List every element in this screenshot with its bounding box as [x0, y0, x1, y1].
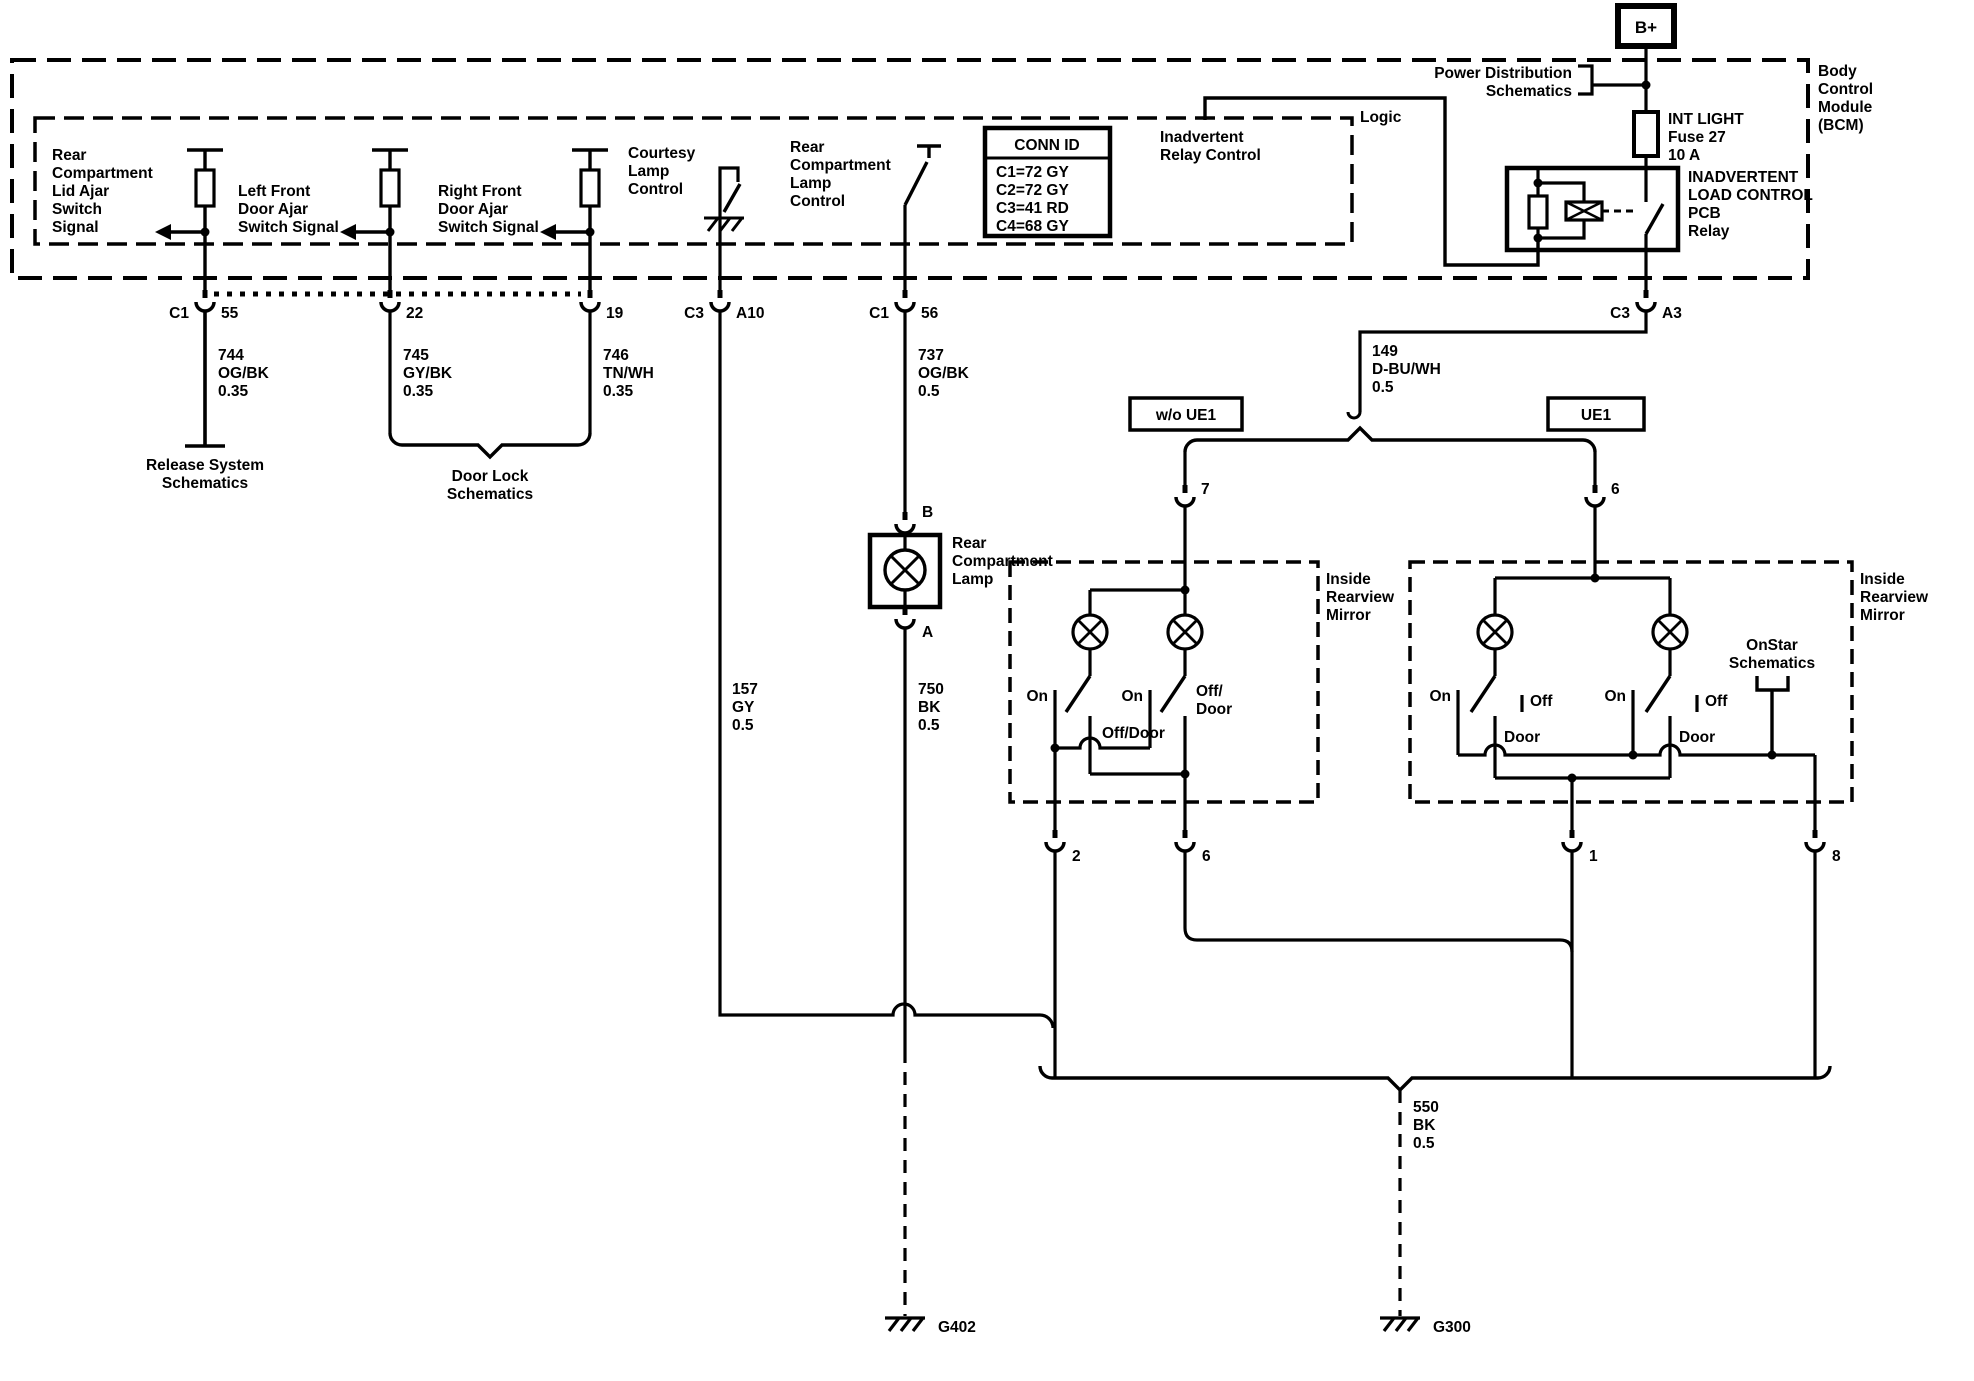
pin-label-c3b: C3 [1610, 305, 1630, 322]
mirror-right-outputs [1572, 755, 1815, 830]
wire-745-color: GY/BK [403, 365, 453, 382]
conn-id-row2: C2=72 GY [996, 182, 1069, 199]
rear-lamp-control-label3: Lamp [790, 175, 831, 192]
relay-label3: PCB [1688, 205, 1721, 222]
relay-label4: Relay [1688, 223, 1730, 240]
mirror-right-label2: Rearview [1860, 589, 1929, 606]
fuse-label2: Fuse 27 [1668, 129, 1726, 146]
connector-cup [1046, 842, 1064, 851]
fuse-label1: INT LIGHT [1668, 111, 1744, 128]
lf-door-label1: Left Front [238, 183, 310, 200]
mirror-right-lamp-feeds [1495, 578, 1670, 615]
wire-550-gauge: 0.5 [1413, 1135, 1435, 1152]
junction-dot [1534, 179, 1543, 188]
mirror-right-switch2-blade [1646, 676, 1670, 712]
arrowhead-icon [540, 224, 556, 240]
bcm-label-line4: (BCM) [1818, 117, 1864, 134]
pin-label-1: 1 [1589, 848, 1598, 865]
pin-label-56: 56 [921, 305, 939, 322]
lid-ajar-label2: Compartment [52, 165, 153, 182]
pin-label-b: B [922, 504, 933, 521]
connector-c3-a10: C3 A10 [684, 290, 764, 322]
rf-door-label2: Door Ajar [438, 201, 508, 218]
mirror-left-label2: Rearview [1326, 589, 1395, 606]
mirror-right-lamp-outs [1495, 649, 1670, 676]
ground-gather-brace [1040, 1066, 1830, 1090]
mirror-left-offdoor2-label1: Off/ [1196, 683, 1223, 700]
door-lock-brace [390, 433, 590, 457]
wiring-diagram-page: Body Control Module (BCM) Logic B+ Power… [0, 0, 1974, 1376]
rf-door-label3: Switch Signal [438, 219, 539, 236]
mirror-left-outputs [1055, 748, 1185, 830]
courtesy-label1: Courtesy [628, 145, 696, 162]
resistor-rf-door [581, 170, 599, 206]
lid-ajar-label4: Switch [52, 201, 102, 218]
wire-157-circuit: 157 [732, 681, 758, 698]
connector-cup [711, 302, 729, 311]
mirror-left-switch1-blade [1066, 676, 1090, 712]
mirror-right-door2-label: Door [1679, 729, 1715, 746]
wire-label-737: 737 OG/BK 0.5 [918, 347, 970, 400]
rear-lamp-label3: Lamp [952, 571, 993, 588]
mirror-right-switch1-blade [1471, 676, 1495, 712]
wire-745-gauge: 0.35 [403, 383, 434, 400]
wire-label-745: 745 GY/BK 0.35 [403, 347, 453, 400]
mirror-right-door-wires [1495, 716, 1670, 778]
rear-lamp-switch-blade [905, 162, 927, 205]
power-distribution-bracket [1578, 66, 1646, 94]
ground-g300: G300 [1380, 1318, 1471, 1336]
pin-label-6-entry: 6 [1611, 481, 1620, 498]
pin-label-7: 7 [1201, 481, 1210, 498]
wire-157-gy [720, 311, 1053, 1028]
connector-7: 7 [1176, 481, 1210, 506]
courtesy-label3: Control [628, 181, 683, 198]
pin-label-6: 6 [1202, 848, 1211, 865]
mirror-right-label1: Inside [1860, 571, 1905, 588]
connector-6-entry: 6 [1586, 481, 1620, 506]
wire-737-gauge: 0.5 [918, 383, 940, 400]
wire-745-circuit: 745 [403, 347, 429, 364]
ground-g402-label: G402 [938, 1319, 976, 1336]
mirror-left-label1: Inside [1326, 571, 1371, 588]
conn-id-row3: C3=41 RD [996, 200, 1069, 217]
relay-label2: LOAD CONTROL [1688, 187, 1813, 204]
wire-746-gauge: 0.35 [603, 383, 634, 400]
junction-dot [1629, 751, 1638, 760]
door-lock-label2: Schematics [447, 486, 533, 503]
ground-g402: G402 [885, 1318, 976, 1336]
mirror-left-on2-label: On [1121, 688, 1143, 705]
bcm-label-line3: Module [1818, 99, 1873, 116]
pin-label-a: A [922, 624, 933, 641]
rear-lamp-control-label4: Control [790, 193, 845, 210]
lf-door-label3: Switch Signal [238, 219, 339, 236]
connector-cup [1176, 497, 1194, 506]
wire-157-gauge: 0.5 [732, 717, 754, 734]
rear-lamp-label1: Rear [952, 535, 986, 552]
pin-label-a3: A3 [1662, 305, 1682, 322]
pin-label-19: 19 [606, 305, 624, 322]
lf-door-label2: Door Ajar [238, 201, 308, 218]
rear-lamp-switch-contact [917, 146, 941, 158]
connector-8: 8 [1806, 830, 1841, 865]
wire-label-750: 750 BK 0.5 [918, 681, 944, 734]
onstar-bracket [1757, 676, 1788, 755]
connector-cup [896, 524, 914, 533]
pin-label-c3: C3 [684, 305, 704, 322]
relay-label1: INADVERTENT [1688, 169, 1799, 186]
logic-box [35, 118, 1352, 244]
wire-149-color: D-BU/WH [1372, 361, 1441, 378]
wire-550-circuit: 550 [1413, 1099, 1439, 1116]
wire-746-color: TN/WH [603, 365, 654, 382]
wire-744-gauge: 0.35 [218, 383, 249, 400]
conn-id-header: CONN ID [1014, 137, 1079, 154]
pin-label-2: 2 [1072, 848, 1081, 865]
arrowhead-icon [340, 224, 356, 240]
wire-746-circuit: 746 [603, 347, 629, 364]
connector-cup [381, 302, 399, 311]
arrowhead-icon [155, 224, 171, 240]
courtesy-label2: Lamp [628, 163, 669, 180]
ground-icon [704, 218, 744, 231]
logic-label: Logic [1360, 109, 1402, 126]
mirror-left-switch2-blade [1161, 676, 1185, 712]
conn-id-row1: C1=72 GY [996, 164, 1069, 181]
ground-icon [1380, 1318, 1420, 1331]
connector-1: 1 [1563, 830, 1598, 865]
connector-cup [196, 302, 214, 311]
wire-pin6-merge [1185, 851, 1572, 952]
pin-label-a10: A10 [736, 305, 764, 322]
power-distribution-label2: Schematics [1486, 83, 1572, 100]
pin-label-22: 22 [406, 305, 423, 322]
wiring-diagram: Body Control Module (BCM) Logic B+ Power… [0, 0, 1974, 1376]
fuse-label3: 10 A [1668, 147, 1700, 164]
release-system-label1: Release System [146, 457, 264, 474]
pin-label-c1: C1 [169, 305, 189, 322]
ue1-split-brace [1185, 428, 1595, 452]
connector-cup [581, 302, 599, 311]
conn-id-row4: C4=68 GY [996, 218, 1069, 235]
power-distribution-label1: Power Distribution [1434, 65, 1572, 82]
wire-label-746: 746 TN/WH 0.35 [603, 347, 654, 400]
mirror-left-lamp-feeds [1090, 590, 1185, 615]
mirror-left-on1-label: On [1026, 688, 1048, 705]
wire-149-curl [1348, 412, 1360, 418]
door-lock-label1: Door Lock [452, 468, 529, 485]
inadvertent-relay-control-label2: Relay Control [1160, 147, 1261, 164]
lid-ajar-label5: Signal [52, 219, 99, 236]
wire-label-744: 744 OG/BK 0.35 [218, 347, 270, 400]
rear-lamp-control-label2: Compartment [790, 157, 891, 174]
mirror-right-off1-label: Off [1530, 693, 1553, 710]
connector-cup [1586, 497, 1604, 506]
mirror-right-off2-label: Off [1705, 693, 1728, 710]
connector-cup [1563, 842, 1581, 851]
b-plus-label: B+ [1635, 18, 1657, 37]
wire-149-gauge: 0.5 [1372, 379, 1394, 396]
connector-2: 2 [1046, 830, 1081, 865]
lid-ajar-label3: Lid Ajar [52, 183, 109, 200]
connector-lamp-b: B [896, 504, 933, 533]
bcm-label-line2: Control [1818, 81, 1873, 98]
courtesy-switch-blade [724, 184, 740, 212]
onstar-label2: Schematics [1729, 655, 1815, 672]
connector-cup [1637, 302, 1655, 311]
ue1-label: UE1 [1581, 407, 1612, 424]
mirror-left-offdoor2-label2: Door [1196, 701, 1232, 718]
wire-737-color: OG/BK [918, 365, 970, 382]
rear-lamp-control-label1: Rear [790, 139, 824, 156]
mirror-right-on1-label: On [1429, 688, 1451, 705]
connector-6: 6 [1176, 830, 1211, 865]
rf-door-label1: Right Front [438, 183, 522, 200]
wire-550-color: BK [1413, 1117, 1436, 1134]
mirror-box-right [1410, 562, 1852, 802]
pin-label-8: 8 [1832, 848, 1841, 865]
pin-label-55: 55 [221, 305, 239, 322]
mirror-left-lamp-outs [1090, 649, 1185, 676]
bcm-label-line1: Body [1818, 63, 1857, 80]
wire-750-gauge: 0.5 [918, 717, 940, 734]
mirror-left-label3: Mirror [1326, 607, 1371, 624]
connector-cup [1176, 842, 1194, 851]
release-system-label2: Schematics [162, 475, 248, 492]
wo-ue1-label: w/o UE1 [1155, 407, 1217, 424]
relay-switch-blade [1646, 204, 1663, 234]
wire-737-circuit: 737 [918, 347, 944, 364]
connector-cup [896, 619, 914, 628]
connector-cup [1806, 842, 1824, 851]
ground-icon [885, 1318, 925, 1331]
wire-157-color: GY [732, 699, 755, 716]
wire-label-157: 157 GY 0.5 [732, 681, 758, 734]
inadvertent-relay-control-label1: Inadvertent [1160, 129, 1244, 146]
mirror-right-door1-label: Door [1504, 729, 1540, 746]
wire-744-color: OG/BK [218, 365, 270, 382]
onstar-label1: OnStar [1746, 637, 1798, 654]
mirror-right-on2-label: On [1604, 688, 1626, 705]
connector-lamp-a: A [896, 607, 933, 641]
resistor-lid-ajar [196, 170, 214, 206]
wire-744-circuit: 744 [218, 347, 244, 364]
wire-label-149: 149 D-BU/WH 0.5 [1372, 343, 1441, 396]
connector-cup [896, 302, 914, 311]
relay-resistor [1529, 196, 1547, 228]
lid-ajar-label1: Rear [52, 147, 86, 164]
connector-19: 19 [581, 290, 624, 322]
wire-label-550: 550 BK 0.5 [1413, 1099, 1439, 1152]
ground-g300-label: G300 [1433, 1319, 1471, 1336]
wire-750-circuit: 750 [918, 681, 944, 698]
resistor-lf-door [381, 170, 399, 206]
mirror-right-label3: Mirror [1860, 607, 1905, 624]
pin-label-c1b: C1 [869, 305, 889, 322]
fuse-symbol [1634, 112, 1658, 156]
mirror-left-offdoor1-label: Off/Door [1102, 725, 1165, 742]
wire-149-circuit: 149 [1372, 343, 1398, 360]
wire-750-color: BK [918, 699, 941, 716]
